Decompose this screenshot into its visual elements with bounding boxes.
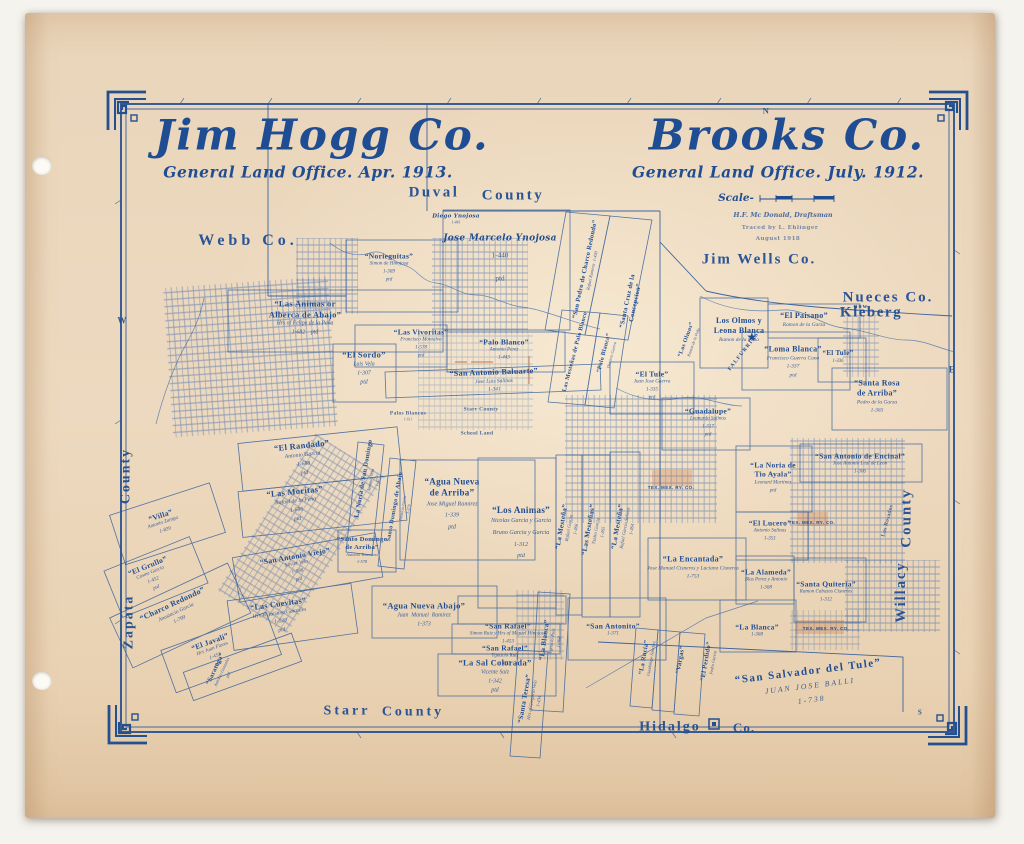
traced-credit: Traced by L. Ehlinger [742, 225, 819, 231]
jim-hogg-title: Jim Hogg Co. [154, 111, 489, 160]
brooks-subtitle: General Land Office. July. 1912. [632, 163, 924, 182]
corner-ornament-icon [108, 92, 146, 130]
scale-bar [760, 195, 834, 202]
scale-label: Scale- [718, 192, 754, 204]
draftsman-credit: H.F. Mc Donald, Draftsman [733, 211, 832, 219]
bottom-border-ornament [709, 719, 719, 729]
corner-ornament-icon [928, 706, 966, 744]
scanned-map-page: DuvalCountyWebb Co.Jim Wells Co.Nueces C… [0, 0, 1024, 844]
corner-ornament-icon [929, 92, 967, 130]
date-credit: August 1918 [756, 236, 800, 242]
jim-hogg-subtitle: General Land Office. Apr. 1913. [163, 163, 452, 182]
corner-ornament-icon [109, 705, 147, 743]
brooks-title: Brooks Co. [649, 111, 925, 160]
survey-block-texture [163, 238, 940, 660]
